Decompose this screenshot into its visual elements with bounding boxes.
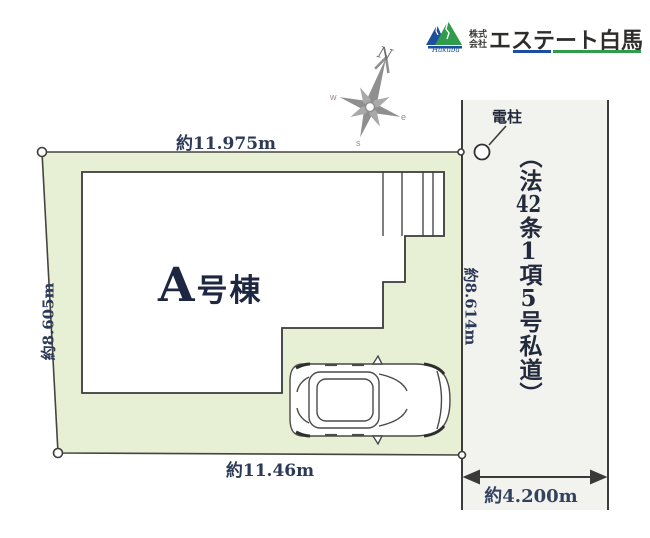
building-name-label: A号棟: [158, 258, 262, 313]
measurement-left: 約8.605m: [38, 267, 59, 377]
company-prefix: 株式 会社: [469, 29, 487, 49]
compass-west-label: w: [330, 92, 337, 102]
plot-plan-page: Hakuba 株式 会社 エステート白馬 N w s e 約11.975m 約8…: [0, 0, 650, 538]
measurement-top: 約11.975m: [156, 129, 296, 154]
road-designation-label: （法42条1項5号私道）: [510, 145, 546, 445]
car-illustration: [290, 356, 450, 444]
utility-pole-label: 電柱: [492, 106, 522, 127]
road-width-label: 約4.200m: [456, 482, 606, 508]
measurement-bottom: 約11.46m: [200, 456, 340, 481]
logo-underline: [513, 50, 641, 53]
measurement-right: 約8.614m: [461, 252, 482, 362]
mountain-logo-icon: Hakuba: [424, 15, 466, 57]
utility-pole-marker: [475, 145, 490, 160]
logo-script-text: Hakuba: [432, 46, 460, 54]
compass-east-label: e: [401, 112, 406, 122]
compass-rose: [330, 48, 417, 148]
compass-south-label: s: [356, 138, 361, 148]
